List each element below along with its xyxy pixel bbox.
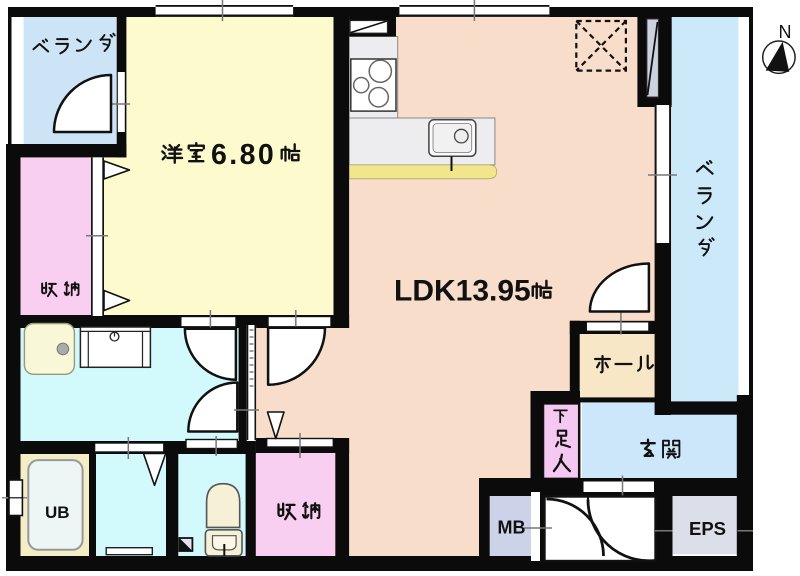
svg-text:UB: UB — [45, 503, 70, 522]
svg-text:EPS: EPS — [689, 518, 726, 539]
svg-text:N: N — [779, 22, 792, 42]
svg-text:MB: MB — [498, 518, 526, 538]
svg-text:6.80: 6.80 — [211, 139, 276, 171]
svg-text:LDK13.95: LDK13.95 — [394, 275, 531, 308]
